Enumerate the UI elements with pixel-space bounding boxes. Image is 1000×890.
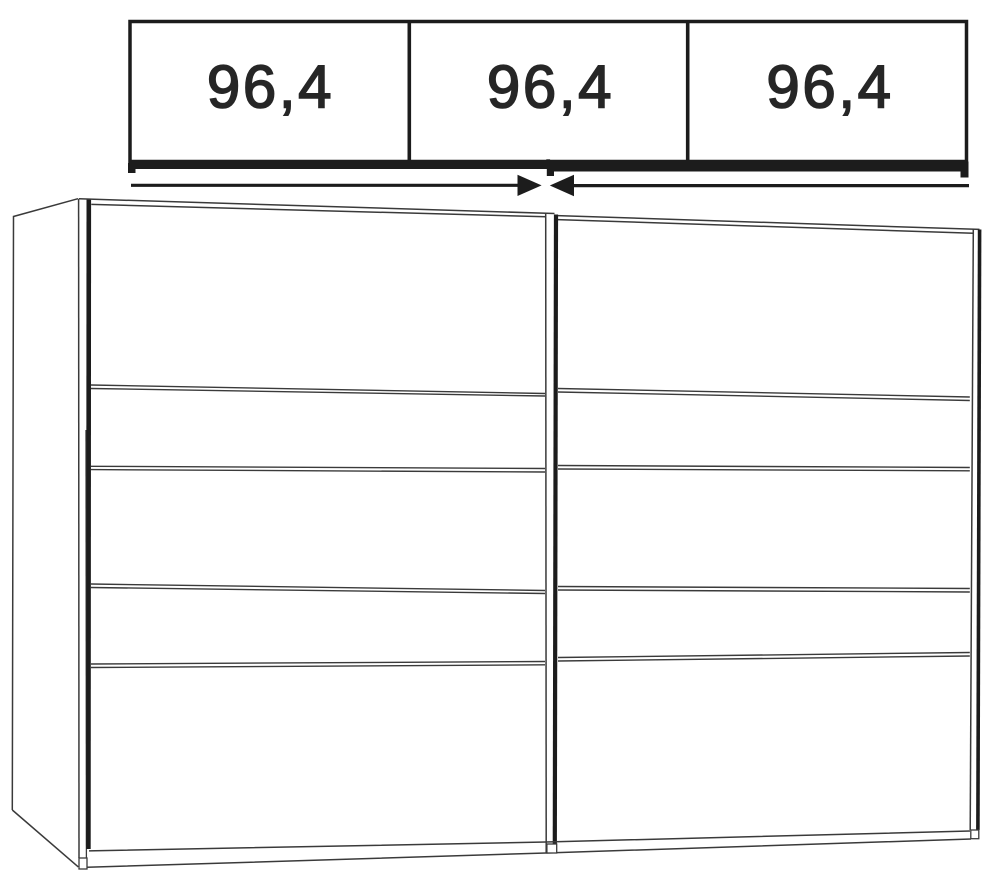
svg-text:96,4: 96,4 (487, 54, 614, 121)
svg-text:96,4: 96,4 (766, 54, 893, 121)
svg-text:96,4: 96,4 (207, 54, 334, 121)
